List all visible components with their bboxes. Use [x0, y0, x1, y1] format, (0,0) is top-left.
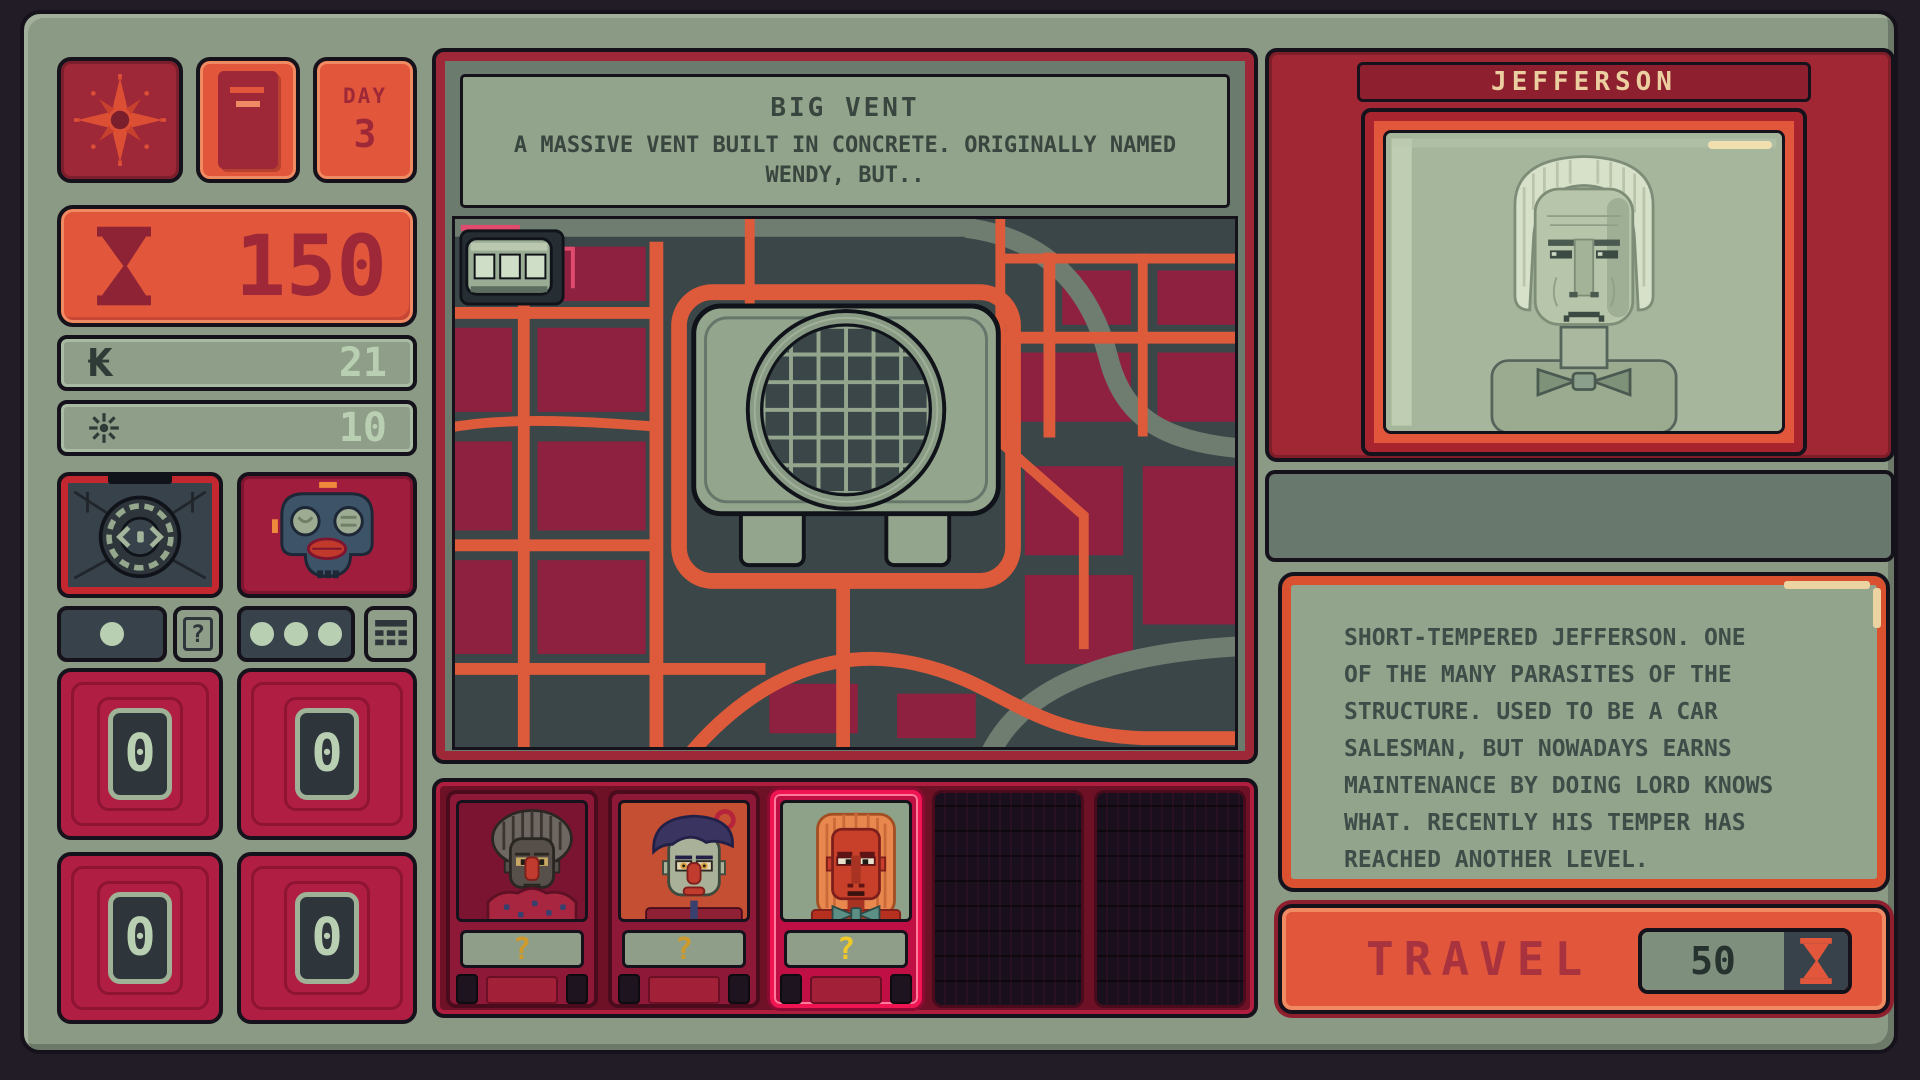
party-strip: ?	[432, 778, 1258, 1018]
hourglass-icon	[1800, 938, 1832, 984]
character-name-bar: JEFFERSON	[1357, 62, 1811, 102]
character-name: JEFFERSON	[1491, 67, 1677, 97]
charge-dot	[100, 622, 124, 646]
counter-display: 0	[57, 852, 223, 1024]
party-query-plate[interactable]: ?	[784, 930, 908, 968]
character-portrait-screen	[1383, 130, 1785, 434]
energy-value: 10	[339, 405, 387, 451]
card-base	[486, 976, 558, 1004]
compass-button[interactable]	[57, 57, 183, 183]
character-description-box: SHORT-TEMPERED JEFFERSON. ONE OF THE MAN…	[1278, 572, 1890, 892]
location-title: BIG VENT	[463, 93, 1227, 123]
question-icon: ?	[183, 617, 213, 651]
tram-marker	[461, 225, 563, 304]
counter-display: 0	[57, 668, 223, 840]
mask-grid-button[interactable]	[364, 606, 417, 662]
party-portrait	[456, 800, 588, 922]
currency-icon: ₭	[87, 341, 113, 385]
card-base	[810, 976, 882, 1004]
location-header: BIG VENT A MASSIVE VENT BUILT IN CONCRET…	[460, 74, 1230, 208]
party-query-plate[interactable]: ?	[460, 930, 584, 968]
party-member-1[interactable]: ?	[446, 790, 598, 1008]
character-portrait-frame	[1361, 108, 1807, 456]
radar-device-icon	[65, 482, 215, 588]
card-chip	[618, 974, 640, 1004]
border-glint	[1873, 588, 1881, 628]
charge-dot	[284, 622, 308, 646]
card-chip	[890, 974, 912, 1004]
party-member-3-selected[interactable]: ?	[770, 790, 922, 1008]
screen-glint	[1708, 141, 1772, 149]
jefferson-portrait	[1386, 133, 1782, 431]
hourglass-icon	[97, 226, 151, 306]
travel-label: TRAVEL	[1366, 932, 1592, 986]
counter-value: 0	[108, 892, 172, 984]
travel-cost-icon-box	[1784, 932, 1848, 990]
card-chip	[728, 974, 750, 1004]
time-value: 150	[235, 217, 387, 315]
party-slot-empty-4[interactable]	[932, 790, 1084, 1008]
card-chip	[566, 974, 588, 1004]
currency-display: ₭ 21	[57, 335, 417, 391]
counter-value: 0	[295, 708, 359, 800]
counter-display: 0	[237, 668, 417, 840]
energy-display: 10	[57, 400, 417, 456]
clamp-decor	[108, 472, 172, 484]
compass-icon	[74, 74, 166, 166]
radar-charge-indicator	[57, 606, 167, 662]
counter-value: 0	[295, 892, 359, 984]
mask-charge-indicator	[237, 606, 355, 662]
radar-info-button[interactable]: ?	[173, 606, 223, 662]
log-button[interactable]	[196, 57, 300, 183]
party-query-plate[interactable]: ?	[622, 930, 746, 968]
time-display: 150	[57, 205, 417, 327]
gadget-slot-radar[interactable]	[57, 472, 223, 598]
gadget-slot-mask[interactable]	[237, 472, 417, 598]
party-member-2[interactable]: ?	[608, 790, 760, 1008]
mask-device-icon	[247, 480, 407, 590]
card-chip	[780, 974, 802, 1004]
counter-value: 0	[108, 708, 172, 800]
currency-value: 21	[339, 340, 387, 386]
travel-button[interactable]: TRAVEL 50	[1278, 904, 1890, 1014]
city-map[interactable]	[452, 216, 1238, 750]
day-label: DAY	[343, 85, 387, 108]
location-description: A MASSIVE VENT BUILT IN CONCRETE. ORIGIN…	[463, 131, 1227, 191]
sun-spark-icon	[87, 411, 121, 445]
document-icon	[218, 71, 278, 169]
day-value: 3	[343, 114, 387, 156]
card-base	[648, 976, 720, 1004]
party-slot-empty-5[interactable]	[1094, 790, 1246, 1008]
day-display: DAY 3	[313, 57, 417, 183]
travel-cost-display: 50	[1638, 928, 1852, 994]
border-glint	[1784, 581, 1870, 589]
grid-icon	[375, 620, 407, 648]
charge-dot	[250, 622, 274, 646]
charge-dot	[318, 622, 342, 646]
counter-display: 0	[237, 852, 417, 1024]
city-map-art	[455, 219, 1238, 750]
card-chip	[456, 974, 478, 1004]
travel-cost-value: 50	[1642, 932, 1784, 990]
character-panel: JEFFERSON	[1265, 48, 1895, 462]
party-portrait	[618, 800, 750, 922]
character-description: SHORT-TEMPERED JEFFERSON. ONE OF THE MAN…	[1344, 620, 1842, 879]
map-panel: BIG VENT A MASSIVE VENT BUILT IN CONCRET…	[432, 48, 1258, 764]
party-portrait	[780, 800, 912, 922]
game-screen: DAY 3 150 ₭ 21 10	[0, 0, 1920, 1080]
divider-band	[1265, 470, 1895, 562]
